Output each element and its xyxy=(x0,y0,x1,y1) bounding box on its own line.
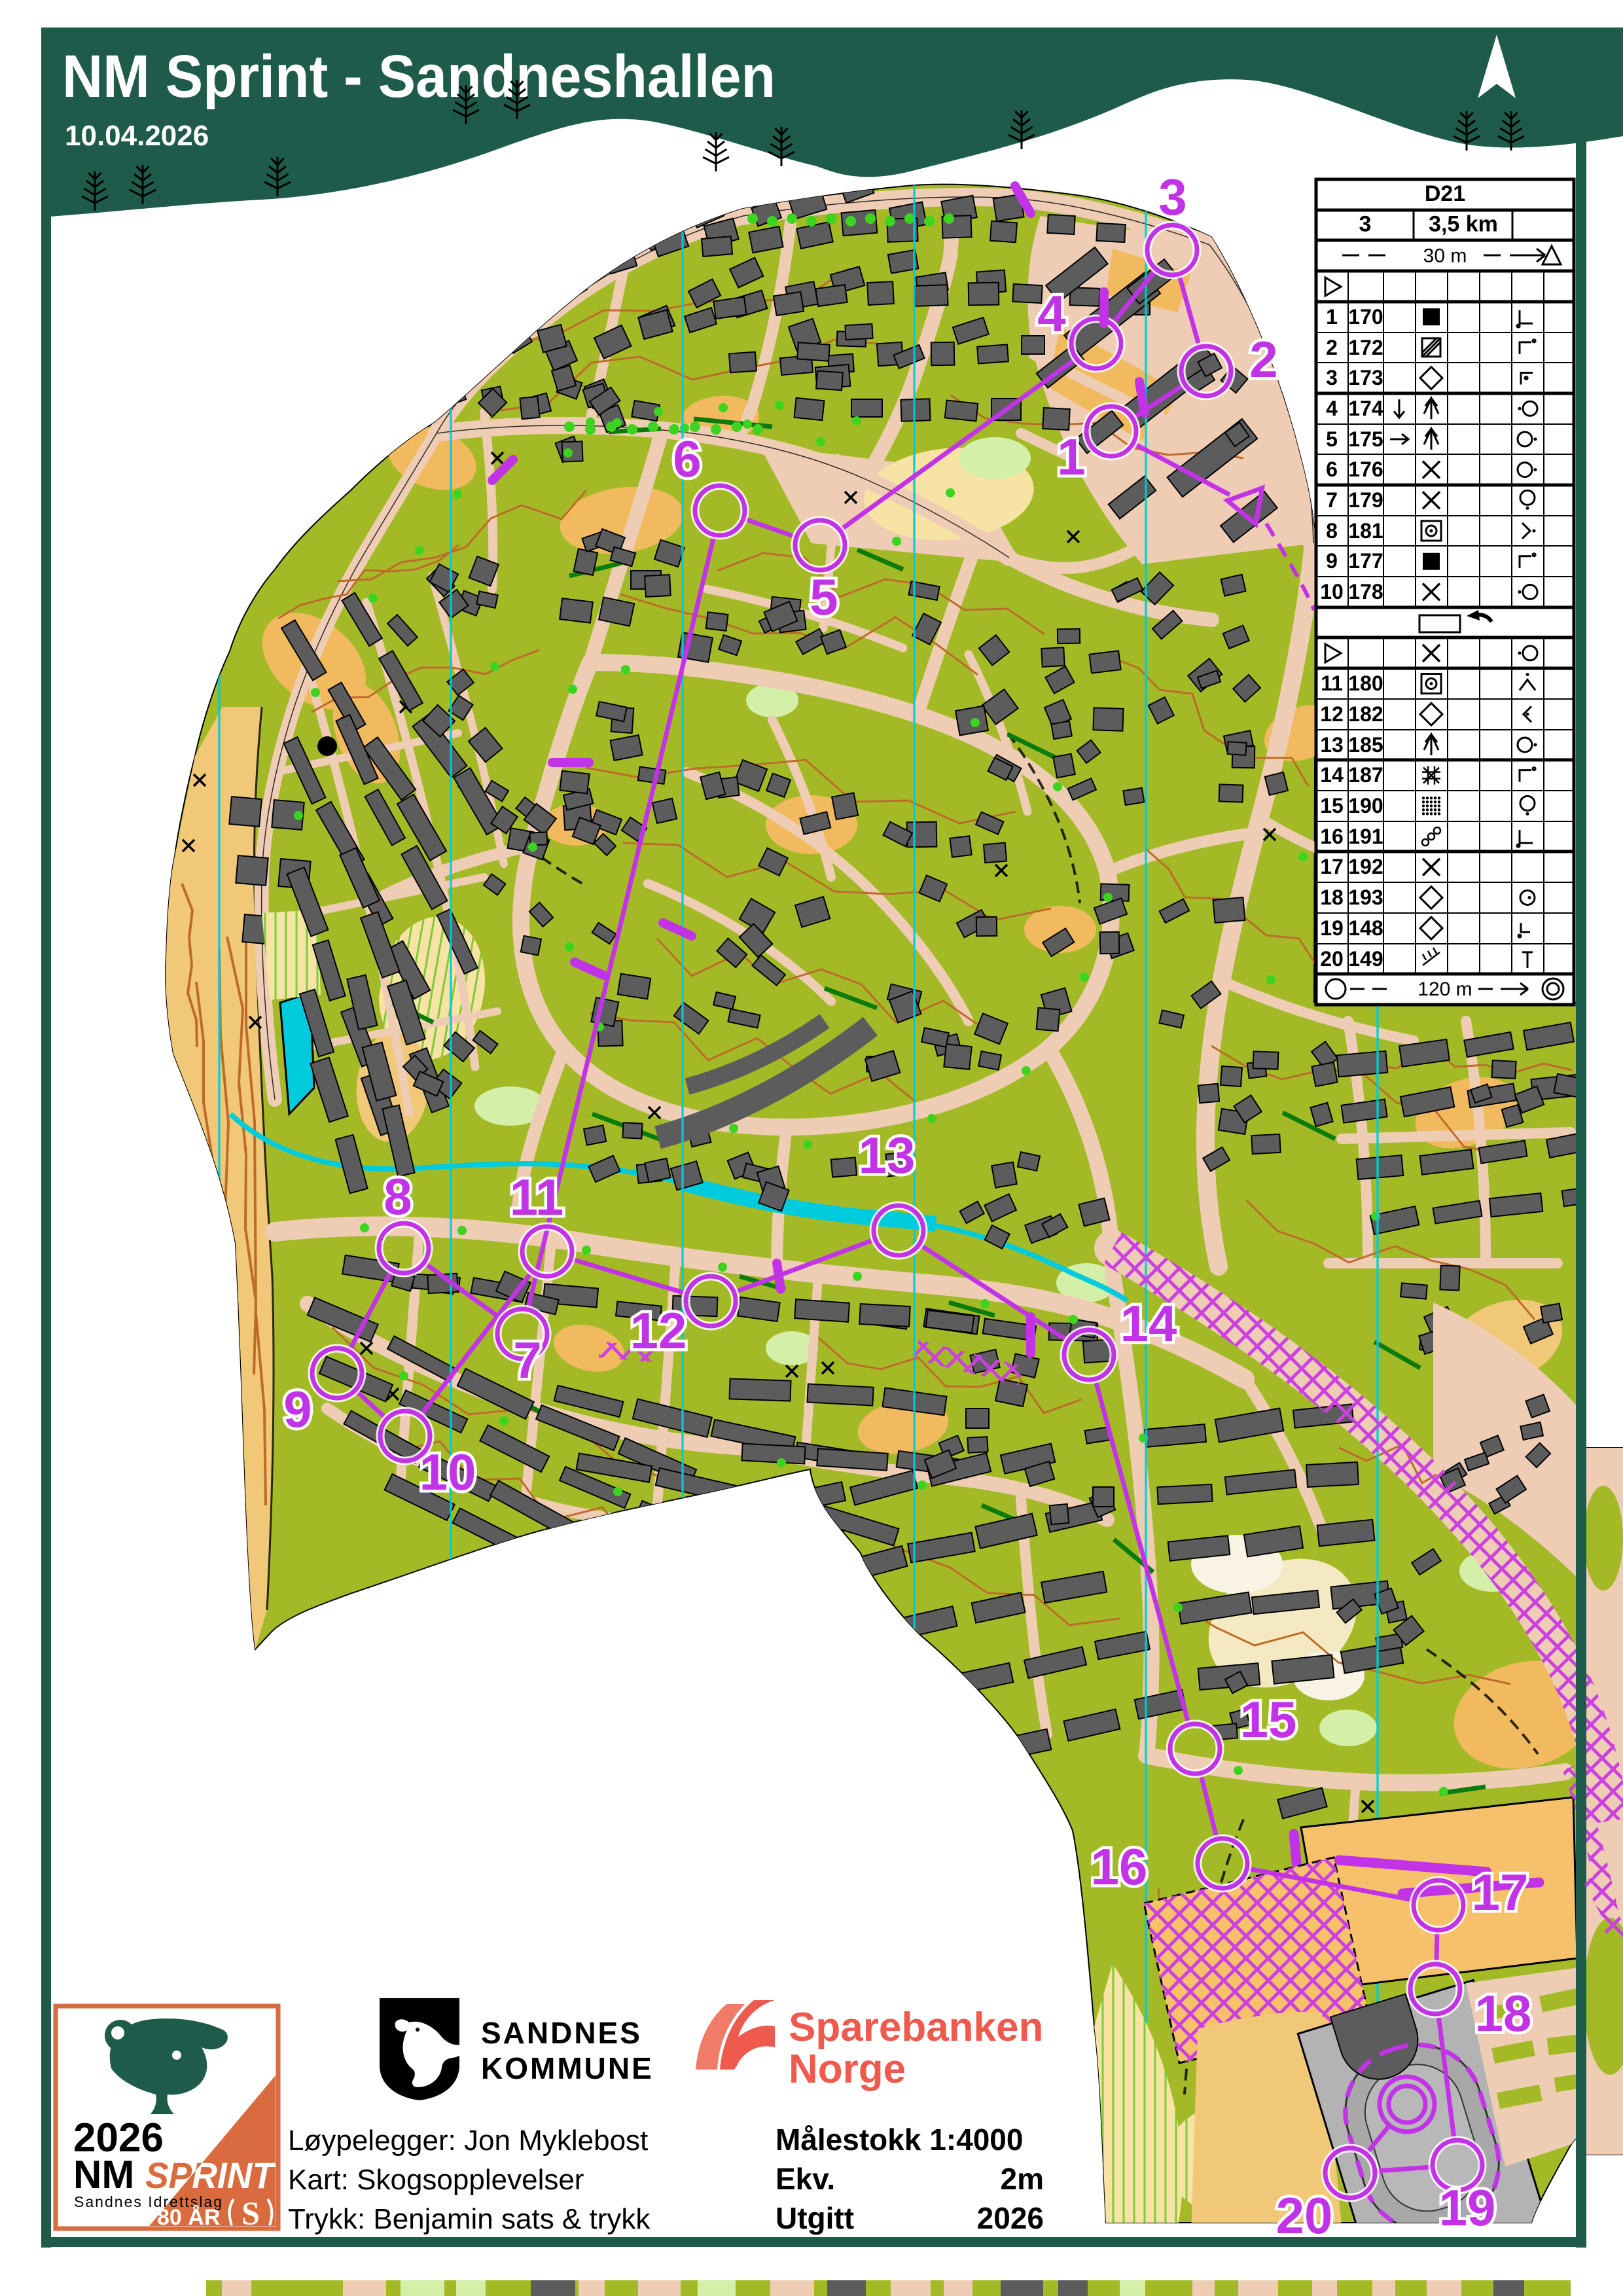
svg-text:D21: D21 xyxy=(1425,181,1465,206)
svg-text:1: 1 xyxy=(1326,305,1338,329)
svg-text:Løypelegger: Jon Myklebost: Løypelegger: Jon Myklebost xyxy=(288,2125,648,2157)
svg-text:Norge: Norge xyxy=(789,2047,906,2092)
svg-text:NM Sprint - Sandneshallen: NM Sprint - Sandneshallen xyxy=(62,43,776,110)
svg-text:175: 175 xyxy=(1348,427,1383,451)
svg-text:Målestokk 1:4000: Målestokk 1:4000 xyxy=(776,2123,1023,2157)
svg-text:17: 17 xyxy=(1320,855,1344,878)
svg-text:9: 9 xyxy=(1326,549,1338,573)
svg-text:14: 14 xyxy=(1320,763,1344,787)
svg-text:12: 12 xyxy=(630,1302,687,1359)
svg-text:180: 180 xyxy=(1348,672,1383,695)
svg-text:192: 192 xyxy=(1348,855,1383,878)
svg-text:179: 179 xyxy=(1348,488,1383,512)
svg-text:2: 2 xyxy=(1326,336,1338,359)
svg-text:6: 6 xyxy=(673,430,701,488)
svg-text:2m: 2m xyxy=(1001,2162,1044,2196)
svg-text:13: 13 xyxy=(1320,733,1344,757)
svg-text:KOMMUNE: KOMMUNE xyxy=(481,2051,654,2085)
svg-text:S: S xyxy=(241,2195,260,2231)
svg-text:4: 4 xyxy=(1326,397,1338,420)
svg-text:7: 7 xyxy=(1326,488,1338,512)
svg-text:3: 3 xyxy=(1359,212,1372,237)
svg-text:3: 3 xyxy=(1326,366,1338,389)
svg-text:11: 11 xyxy=(510,1168,563,1226)
svg-text:18: 18 xyxy=(1475,1984,1532,2042)
svg-text:149: 149 xyxy=(1348,947,1383,971)
svg-text:3,5 km: 3,5 km xyxy=(1429,212,1498,237)
svg-text:15: 15 xyxy=(1240,1691,1297,1748)
svg-text:8: 8 xyxy=(1326,519,1338,543)
svg-text:5: 5 xyxy=(1326,427,1338,451)
svg-text:2026: 2026 xyxy=(977,2201,1044,2235)
svg-text:170: 170 xyxy=(1348,305,1383,329)
svg-text:80 ÅR: 80 ÅR xyxy=(157,2205,220,2230)
svg-text:14: 14 xyxy=(1120,1295,1177,1352)
svg-text:191: 191 xyxy=(1348,825,1383,848)
svg-text:173: 173 xyxy=(1348,366,1383,389)
svg-text:185: 185 xyxy=(1348,733,1383,757)
svg-text:172: 172 xyxy=(1348,336,1383,359)
svg-text:Sparebanken: Sparebanken xyxy=(789,2005,1043,2050)
svg-text:8: 8 xyxy=(383,1168,412,1225)
svg-text:Utgitt: Utgitt xyxy=(776,2201,854,2235)
svg-text:174: 174 xyxy=(1348,397,1383,420)
svg-text:16: 16 xyxy=(1320,825,1344,848)
svg-text:182: 182 xyxy=(1348,702,1383,726)
svg-text:Ekv.: Ekv. xyxy=(776,2162,835,2196)
svg-text:20: 20 xyxy=(1320,947,1344,971)
svg-text:NM: NM xyxy=(73,2153,134,2197)
svg-text:11: 11 xyxy=(1321,672,1343,695)
svg-text:177: 177 xyxy=(1348,549,1383,573)
svg-text:20: 20 xyxy=(1276,2187,1333,2244)
svg-text:5: 5 xyxy=(810,568,838,626)
svg-text:6: 6 xyxy=(1326,457,1338,481)
svg-text:9: 9 xyxy=(283,1380,312,1438)
svg-text:19: 19 xyxy=(1320,916,1344,940)
svg-text:2: 2 xyxy=(1249,331,1277,388)
svg-text:178: 178 xyxy=(1348,580,1383,603)
svg-text:17: 17 xyxy=(1472,1863,1529,1921)
svg-text:19: 19 xyxy=(1439,2179,1496,2236)
svg-text:176: 176 xyxy=(1348,457,1383,481)
svg-text:10.04.2026: 10.04.2026 xyxy=(65,120,209,152)
svg-text:10: 10 xyxy=(1320,580,1344,603)
svg-text:13: 13 xyxy=(859,1126,916,1184)
svg-text:7: 7 xyxy=(513,1331,541,1389)
svg-text:10: 10 xyxy=(419,1443,476,1501)
svg-text:12: 12 xyxy=(1320,702,1344,726)
svg-text:148: 148 xyxy=(1348,916,1383,940)
svg-text:3: 3 xyxy=(1158,168,1186,226)
svg-text:4: 4 xyxy=(1037,285,1065,342)
svg-text:190: 190 xyxy=(1348,794,1383,817)
svg-text:Trykk: Benjamin sats & trykk: Trykk: Benjamin sats & trykk xyxy=(288,2203,651,2235)
svg-text:Kart: Skogsopplevelser: Kart: Skogsopplevelser xyxy=(288,2164,584,2196)
svg-text:16: 16 xyxy=(1091,1838,1148,1895)
svg-text:15: 15 xyxy=(1320,794,1344,817)
svg-text:18: 18 xyxy=(1320,886,1344,909)
svg-text:181: 181 xyxy=(1348,519,1383,543)
svg-text:1: 1 xyxy=(1057,428,1085,486)
svg-text:193: 193 xyxy=(1348,886,1383,909)
svg-text:187: 187 xyxy=(1348,763,1383,787)
svg-text:120 m: 120 m xyxy=(1418,978,1472,1000)
svg-text:30 m: 30 m xyxy=(1423,245,1467,266)
svg-text:SANDNES: SANDNES xyxy=(481,2016,642,2050)
